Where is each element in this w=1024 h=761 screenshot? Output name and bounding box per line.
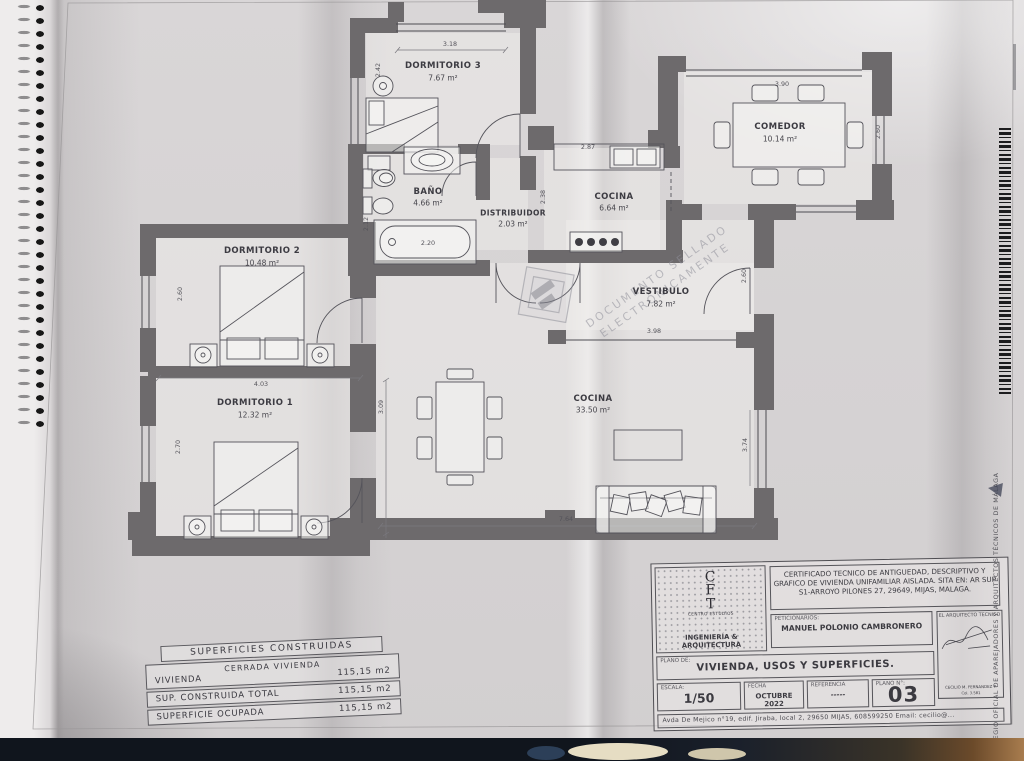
firm-address: Avda De Mejico n°19, edif. Jiraba, local… <box>657 708 1004 729</box>
room-label-vestibulo: VESTIBULO <box>633 287 690 297</box>
barcode-icon <box>999 128 1011 394</box>
scale-value: 1/50 <box>658 690 740 707</box>
date-label: FECHA <box>745 682 803 690</box>
firm-name: INGENIERÍA & ARQUITECTURA <box>657 632 766 650</box>
room-label-salon-cocina: COCINA <box>574 394 613 404</box>
date-box: FECHA OCTUBRE 2022 <box>744 681 805 710</box>
dim-label: 3.74 <box>741 438 749 452</box>
signature-icon <box>938 618 1001 659</box>
certificate-title: CERTIFICADO TECNICO DE ANTIGUEDAD, DESCR… <box>769 562 1000 610</box>
background-object <box>527 746 565 760</box>
dim-label: 7.64 <box>559 515 573 523</box>
dim-label: 2.60 <box>740 269 748 283</box>
dim-label: 2.20 <box>421 239 435 247</box>
room-label-dormitorio-3: DORMITORIO 3 <box>405 61 481 71</box>
dim-label: 2.87 <box>581 143 595 151</box>
row-value: 115,15 m2 <box>339 702 393 714</box>
background-object <box>568 743 668 760</box>
room-area-vestibulo: 7.82 m² <box>646 300 675 309</box>
reference-value: ----- <box>808 690 868 699</box>
room-area-dormitorio-2: 10.48 m² <box>245 259 279 268</box>
row-value: 115,15 m2 <box>338 684 392 696</box>
room-label-comedor: COMEDOR <box>754 122 805 132</box>
dim-label: 3.90 <box>775 80 789 88</box>
room-label-cocina: COCINA <box>595 192 634 202</box>
room-area-salon-cocina: 33.50 m² <box>576 406 610 415</box>
college-stamp-icon <box>987 481 1003 497</box>
dim-label: 2.38 <box>539 190 547 204</box>
row-label: SUP. CONSTRUIDA TOTAL <box>156 689 280 705</box>
room-label-distribuidor: DISTRIBUIDOR <box>480 209 546 218</box>
dim-label: 4.03 <box>254 380 268 388</box>
date-value: OCTUBRE 2022 <box>745 692 803 709</box>
scale-box: ESCALA: 1/50 <box>657 682 742 712</box>
table-surface <box>0 738 1024 761</box>
dim-label: 2.42 <box>374 63 382 77</box>
room-area-cocina: 6.64 m² <box>599 204 628 213</box>
logo-subtitle: CENTRO ESTUDIOS <box>665 611 758 618</box>
sheet-number-box: PLANO N°: 03 <box>872 678 936 707</box>
architect-name: CECILIO M. FERNANDEZ P. <box>942 685 1000 691</box>
row-label: SUPERFICIE OCUPADA <box>156 707 264 722</box>
petitioners-box: PETICIONARIOS: MANUEL POLONIO CAMBRONERO <box>770 611 933 648</box>
room-label-bano: BAÑO <box>414 187 443 197</box>
petitioners-name: MANUEL POLONIO CAMBRONERO <box>772 621 932 633</box>
logo-letter: T <box>656 597 765 612</box>
dim-label: 2.70 <box>174 440 182 454</box>
photo-of-floor-plan: DOCUMENTO SELLADO ELECTRÓNICAMENTE DORMI… <box>0 0 1024 761</box>
room-area-distribuidor: 2.03 m² <box>498 220 527 229</box>
room-area-dormitorio-3: 7.67 m² <box>428 74 457 83</box>
dim-label: 3.18 <box>443 40 457 48</box>
room-area-bano: 4.66 m² <box>413 199 442 208</box>
row-value: 115,15 m2 <box>337 666 391 678</box>
dim-label: 2.60 <box>874 125 882 139</box>
reference-label: REFERENCIA <box>808 680 868 688</box>
room-area-comedor: 10.14 m² <box>763 135 797 144</box>
plan-title-box: PLANO DE: VIVIENDA, USOS Y SUPERFICIES. <box>656 651 934 680</box>
margin-reference-mark <box>1013 44 1016 90</box>
background-object <box>688 748 746 760</box>
surfaces-table: SUPERFICIES CONSTRUIDAS CERRADA VIVIENDA… <box>144 635 401 725</box>
title-block: C F T CENTRO ESTUDIOS INGENIERÍA & ARQUI… <box>650 557 1011 732</box>
room-area-dormitorio-1: 12.32 m² <box>238 411 272 420</box>
dim-label: 3.09 <box>377 400 385 414</box>
reference-box: REFERENCIA ----- <box>807 679 870 708</box>
college-margin-text: COLEGIO OFICIAL DE APAREJADORES Y ARQUIT… <box>993 386 1000 754</box>
architect-number: Col. 3.581 <box>944 691 998 696</box>
dim-label: 2.60 <box>176 287 184 301</box>
room-label-dormitorio-2: DORMITORIO 2 <box>224 246 300 256</box>
firm-logo: C F T CENTRO ESTUDIOS INGENIERÍA & ARQUI… <box>654 565 767 653</box>
dim-label: 2.12 <box>362 217 370 231</box>
dim-label: 3.98 <box>647 327 661 335</box>
room-label-dormitorio-1: DORMITORIO 1 <box>217 398 293 408</box>
row-label: VIVIENDA <box>155 674 202 686</box>
